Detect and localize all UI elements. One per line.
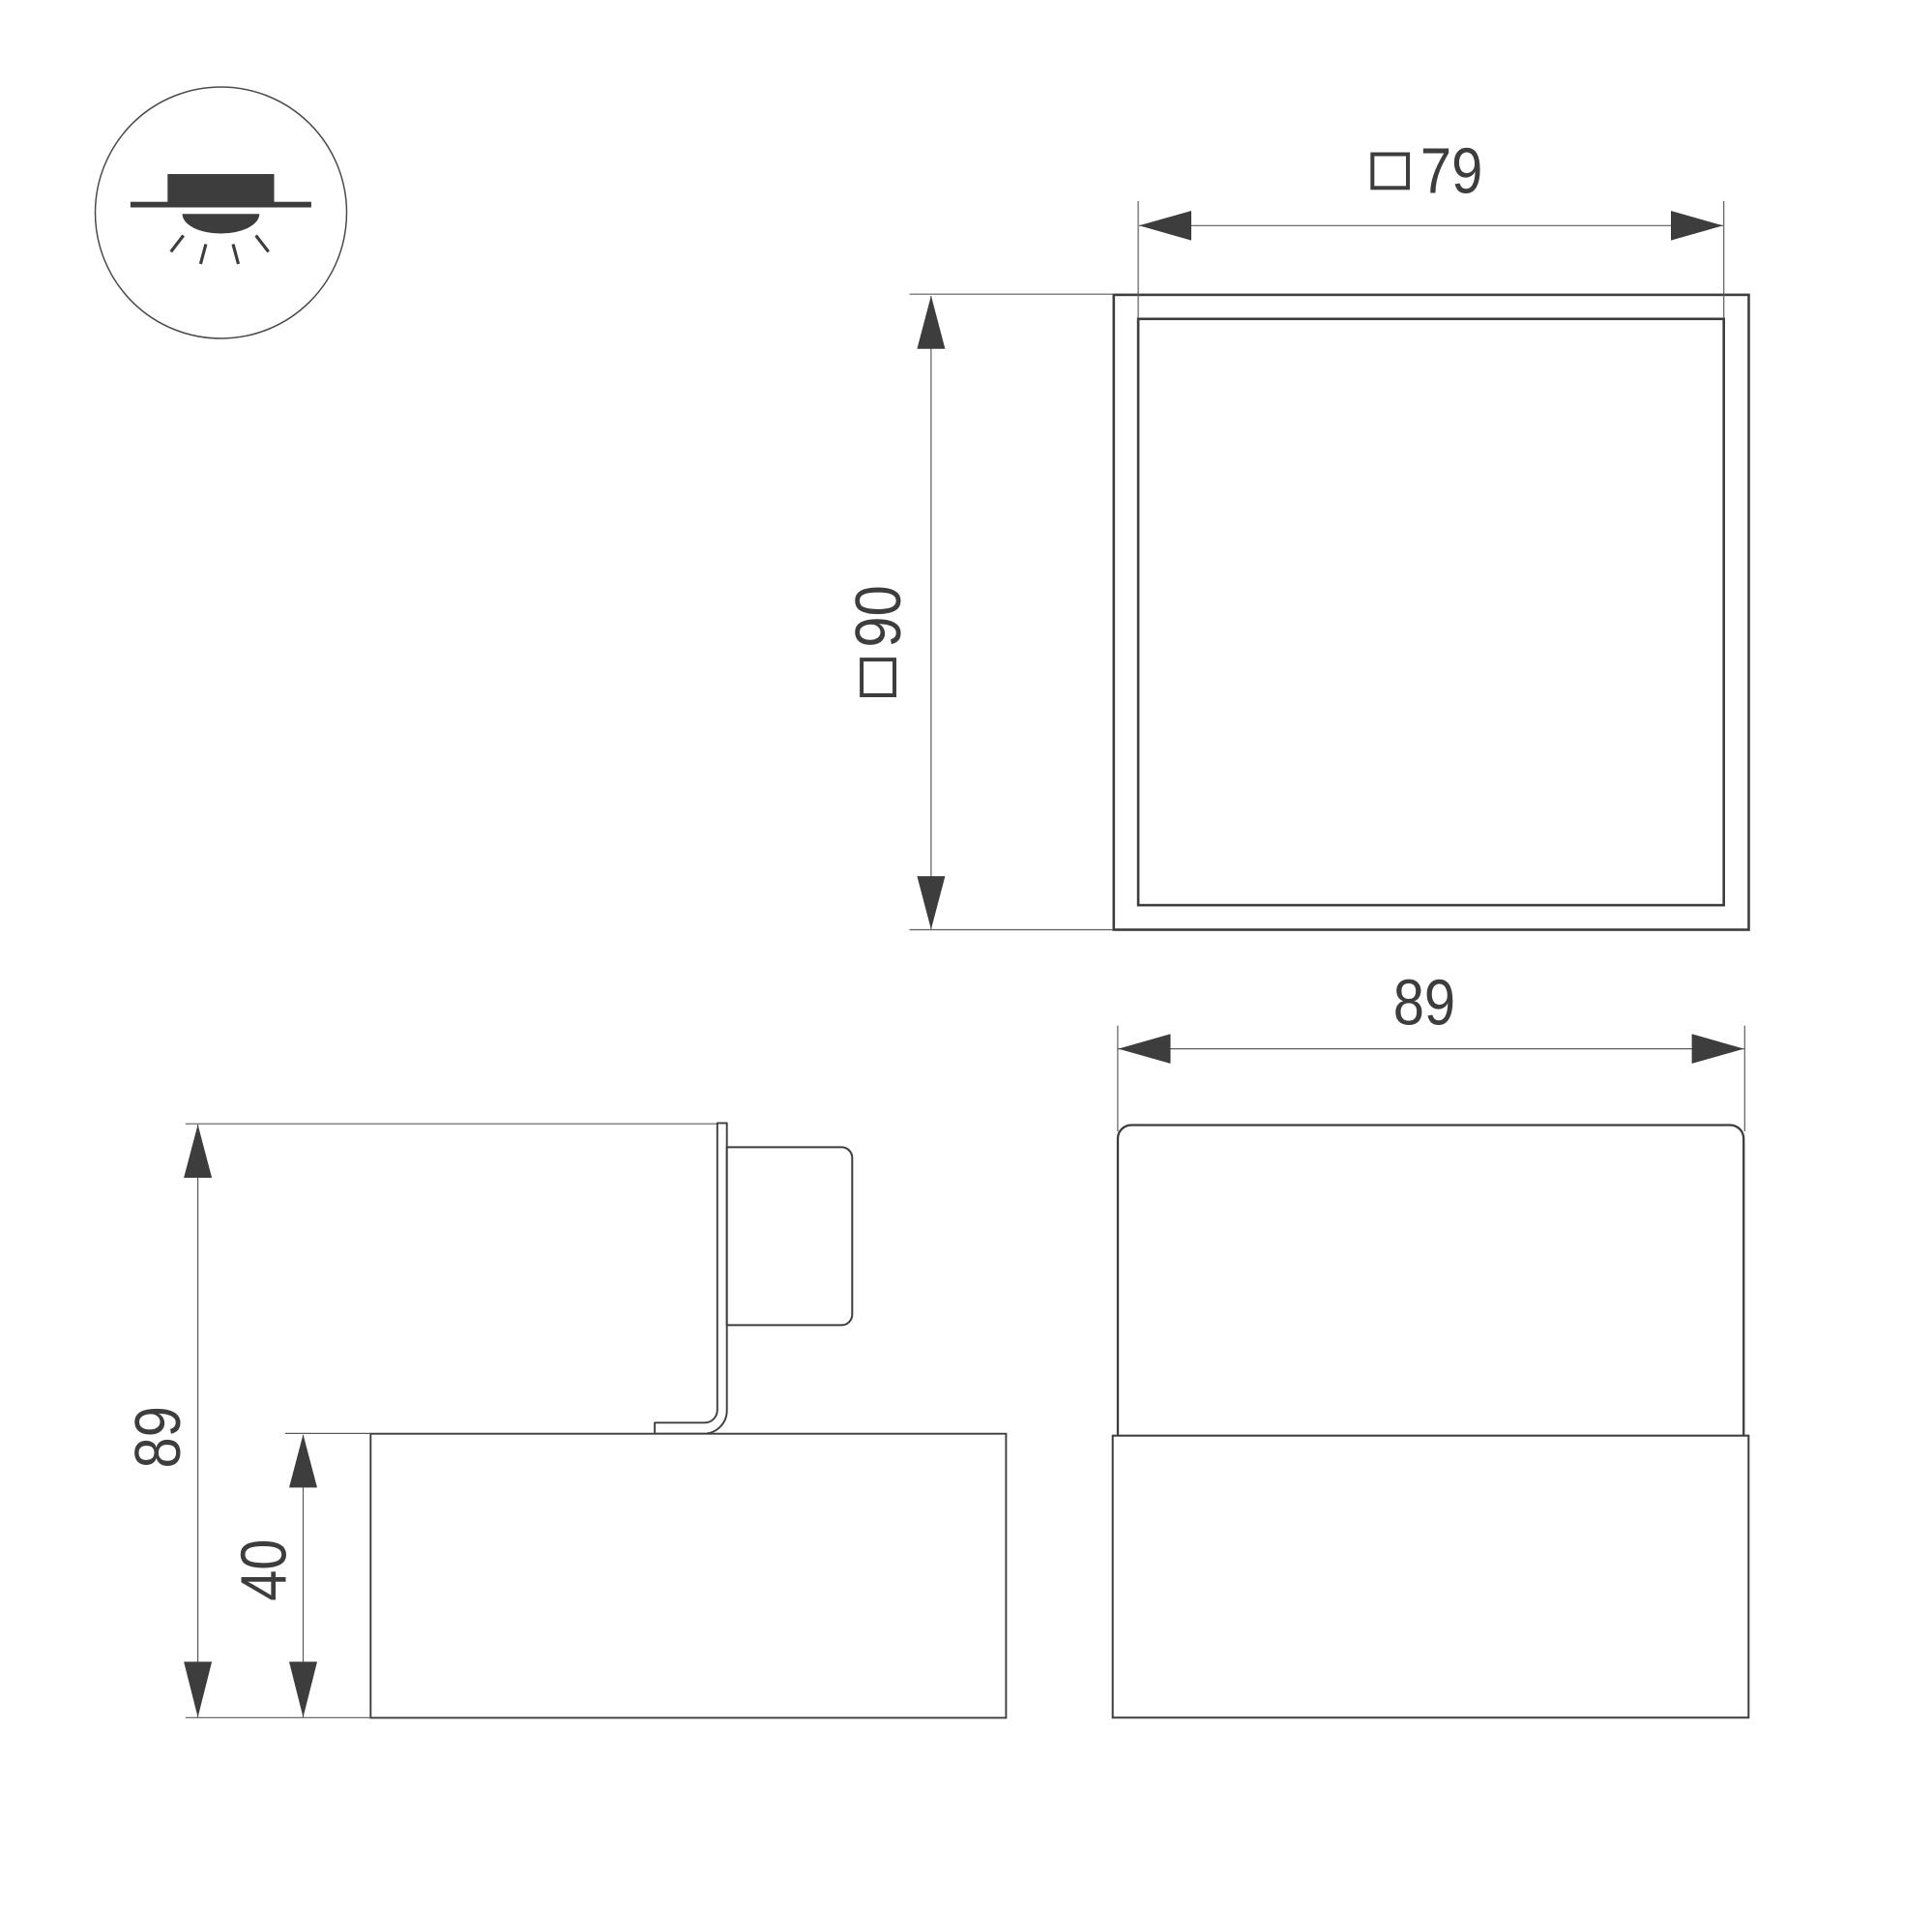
svg-text:89: 89 [123, 1406, 194, 1468]
svg-text:79: 79 [1420, 136, 1482, 208]
svg-text:40: 40 [229, 1539, 301, 1601]
svg-text:89: 89 [1393, 968, 1455, 1039]
svg-text:90: 90 [843, 585, 915, 647]
